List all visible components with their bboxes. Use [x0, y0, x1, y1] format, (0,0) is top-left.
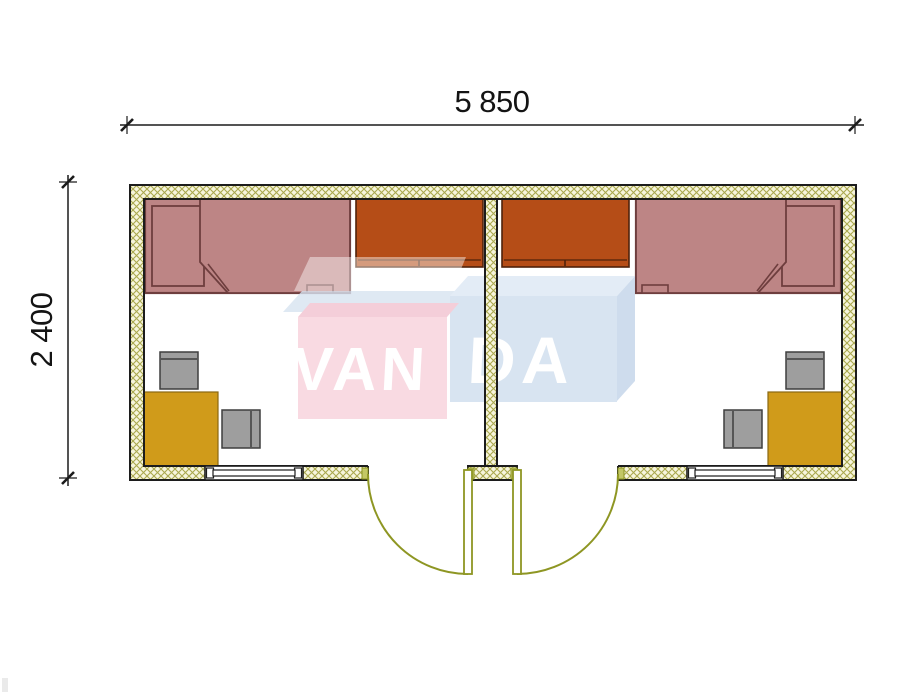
corner-mark: [2, 678, 8, 692]
door-opening: [517, 462, 618, 482]
vanda-watermark: VAN DA: [283, 257, 635, 419]
bed-step: [642, 285, 668, 293]
watermark-pink-top: [298, 303, 459, 317]
wardrobe-body: [502, 199, 629, 267]
floor-plan-canvas: VAN DA: [0, 0, 924, 700]
desk-icon: [768, 392, 842, 466]
desk-icon: [144, 392, 218, 466]
door-icon: [368, 470, 472, 574]
floor-plan-drawing: VAN DA: [0, 0, 924, 700]
door-icon: [513, 470, 618, 574]
window-glazing: [213, 470, 295, 476]
blanket: [636, 198, 786, 293]
dimension-height: 2 400: [24, 175, 77, 486]
dimension-width: 5 850: [120, 84, 864, 134]
wardrobe-body: [356, 199, 483, 267]
watermark-text-da: DA: [466, 323, 577, 397]
chair-icon: [160, 352, 198, 389]
wardrobe-icon: [502, 199, 629, 267]
chair-icon: [222, 410, 260, 448]
partition-wall: [485, 199, 497, 466]
window-icon: [205, 466, 303, 480]
pillow: [152, 206, 204, 286]
window-icon: [687, 466, 783, 480]
pillow: [782, 206, 834, 286]
door-leaf: [464, 470, 472, 574]
bed-icon: [636, 198, 841, 293]
door-opening: [368, 462, 468, 482]
watermark-text-van: VAN: [291, 335, 431, 403]
wardrobe-icon: [356, 199, 483, 267]
dimension-label-width: 5 850: [454, 84, 529, 119]
door-swing-arc: [368, 474, 468, 574]
wall-stub: [468, 466, 517, 480]
door-leaf: [513, 470, 521, 574]
chair-icon: [786, 352, 824, 389]
dimension-label-height: 2 400: [24, 292, 59, 367]
window-glazing: [695, 470, 775, 476]
watermark-haze: [294, 257, 466, 291]
watermark-blue-side: [617, 276, 635, 401]
chair-icon: [724, 410, 762, 448]
watermark-blue-top: [450, 276, 635, 296]
door-swing-arc: [517, 474, 618, 574]
